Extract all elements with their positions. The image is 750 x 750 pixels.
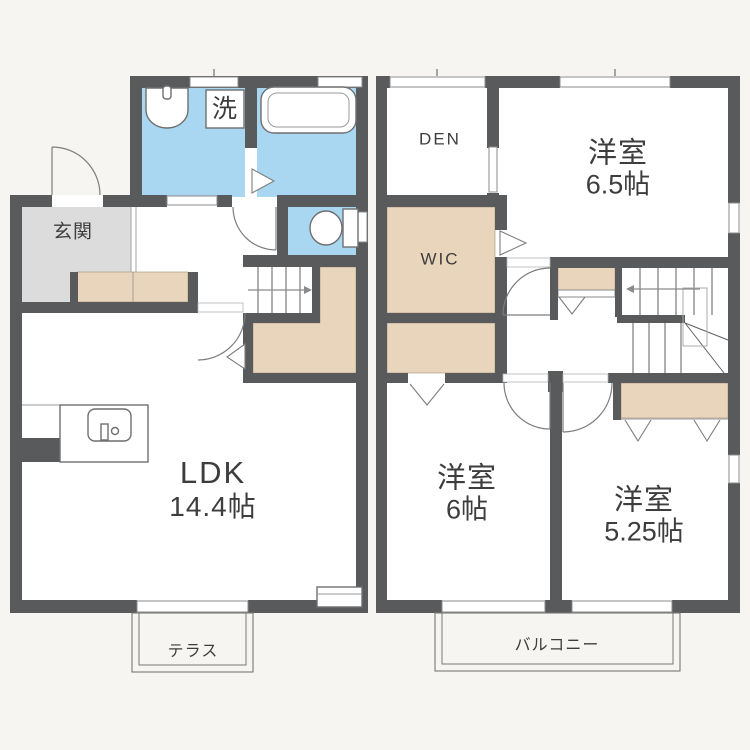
equipment-box — [317, 587, 362, 607]
hall-closet-shelf — [558, 290, 615, 297]
bedroom-c-name: 洋室 — [614, 485, 674, 517]
laundry-label: 洗 — [212, 95, 238, 123]
washroom-sliding-door — [167, 196, 217, 205]
floor2-plan — [376, 69, 740, 671]
den-label: DEN — [419, 129, 461, 148]
bedroom-c-closet — [621, 383, 728, 418]
bedroom-b-size: 6帖 — [437, 495, 497, 525]
bedroom-c-window — [572, 601, 672, 612]
wic-lower-closet — [387, 323, 495, 373]
bedroom-c-label: 洋室 5.25帖 — [604, 485, 684, 548]
toilet-tank — [343, 209, 358, 247]
ldk-name: LDK — [180, 455, 246, 490]
kitchen-drain — [112, 428, 119, 435]
bedroom-a-side-window — [729, 203, 739, 233]
kitchen-sink — [88, 409, 131, 441]
ldk-size: 14.4帖 — [169, 491, 257, 522]
ldk-door-threshold — [198, 303, 243, 312]
wic-label: WIC — [420, 249, 459, 268]
bedroom-c-side-window — [729, 455, 739, 483]
toilet-bowl — [310, 211, 342, 245]
washroom-window — [190, 77, 238, 87]
washbasin-faucet — [163, 86, 171, 99]
bedroom-b-name: 洋室 — [437, 463, 497, 495]
balcony-label: バルコニー — [515, 637, 600, 655]
den-sliding-door — [489, 147, 497, 192]
bedroom-b-threshold — [503, 374, 548, 382]
bedroom-a-size: 6.5帖 — [586, 170, 651, 200]
floor-plan-canvas: 玄関 洗 LDK 14.4帖 テラス DEN WIC 洋室 6.5帖 洋室 6帖… — [0, 0, 750, 750]
terrace-label: テラス — [168, 643, 219, 661]
bedroom-a-name: 洋室 — [588, 138, 648, 170]
hall-closet — [558, 267, 615, 290]
bedroom-a-threshold — [507, 258, 550, 267]
entrance-door-opening — [52, 195, 103, 207]
bathroom-window — [318, 77, 362, 87]
ldk-label: LDK 14.4帖 — [169, 456, 257, 522]
entrance-label: 玄関 — [53, 221, 93, 242]
bathtub — [261, 87, 356, 133]
floor-plan-drawing — [0, 0, 750, 750]
bedroom-a-label: 洋室 6.5帖 — [586, 138, 651, 201]
bedroom-b-window — [442, 601, 545, 612]
entrance-closet — [77, 272, 188, 302]
kitchen-wall-block — [22, 438, 60, 462]
floor1-plan — [10, 69, 368, 672]
bedroom-c-size: 5.25帖 — [604, 517, 684, 547]
den-window — [390, 77, 485, 87]
bedroom-c-threshold — [563, 374, 608, 382]
bedroom-a-window — [560, 77, 670, 87]
ldk-window — [137, 601, 248, 612]
bedroom-b-label: 洋室 6帖 — [437, 463, 497, 526]
kitchen-faucet — [101, 424, 108, 440]
entrance-door-swing — [52, 147, 100, 195]
